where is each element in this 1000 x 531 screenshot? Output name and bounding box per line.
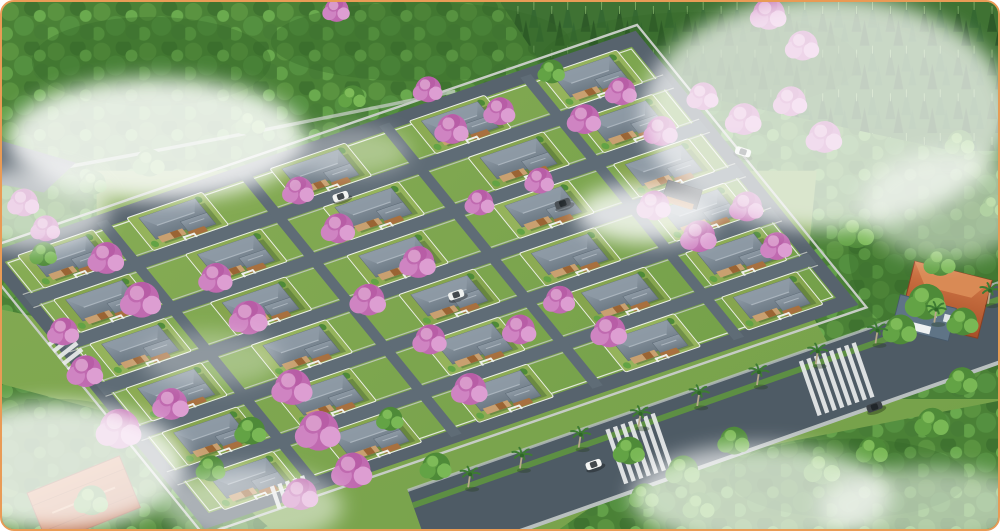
palm-shadow (754, 385, 768, 390)
canopy-highlight (421, 328, 433, 340)
canopy-highlight (420, 79, 430, 89)
canopy-highlight (329, 217, 341, 229)
canopy-highlight (238, 304, 252, 317)
aerial-render-image (2, 2, 998, 529)
canopy-highlight (923, 411, 935, 423)
palm-crown (988, 289, 992, 293)
palm-crown (816, 349, 820, 353)
canopy-highlight (599, 319, 612, 332)
canopy-highlight (206, 266, 218, 278)
canopy-highlight (891, 318, 903, 330)
canopy-highlight (442, 117, 454, 129)
palm-shadow (635, 426, 649, 431)
canopy-highlight (544, 62, 554, 72)
canopy-highlight (472, 192, 482, 202)
canopy-highlight (954, 311, 965, 322)
canopy-highlight (575, 107, 587, 119)
canopy-highlight (725, 430, 736, 441)
canopy-highlight (768, 235, 779, 246)
canopy-highlight (306, 415, 322, 431)
canopy-highlight (96, 246, 109, 259)
canopy-highlight (491, 100, 502, 111)
canopy-highlight (203, 458, 213, 468)
aerial-render-figure (0, 0, 1000, 531)
pink-blossom-tree (322, 2, 349, 22)
palm-crown (757, 370, 761, 374)
canopy-highlight (460, 377, 473, 390)
canopy-highlight (358, 287, 371, 300)
palm-shadow (813, 364, 827, 369)
palm-shadow (873, 343, 887, 348)
palm-shadow (517, 468, 531, 473)
palm-shadow (931, 322, 945, 327)
canopy-highlight (427, 456, 438, 467)
canopy-highlight (341, 457, 355, 471)
canopy-highlight (130, 286, 144, 300)
canopy-highlight (408, 250, 421, 263)
canopy-highlight (915, 288, 929, 302)
canopy-highlight (620, 440, 631, 451)
palm-crown (579, 433, 583, 437)
canopy-highlight (161, 392, 174, 405)
canopy-highlight (510, 318, 522, 330)
screenshot-stage (0, 0, 1000, 531)
palm-crown (468, 472, 472, 476)
canopy-highlight (75, 359, 88, 372)
canopy-highlight (290, 180, 301, 191)
canopy-highlight (863, 440, 874, 451)
canopy-highlight (55, 321, 66, 332)
palm-crown (520, 454, 524, 458)
canopy-highlight (383, 410, 393, 420)
canopy-highlight (531, 171, 541, 181)
mist-cloud (291, 126, 411, 176)
palm-shadow (576, 447, 590, 452)
canopy-highlight (953, 370, 964, 381)
palm-crown (875, 329, 879, 333)
palm-crown (934, 308, 938, 312)
canopy-highlight (242, 420, 253, 431)
canopy-highlight (612, 80, 623, 91)
palm-shadow (694, 405, 708, 410)
canopy-highlight (345, 88, 355, 98)
canopy-highlight (551, 289, 562, 300)
mist-cloud (141, 331, 280, 387)
palm-crown (638, 412, 642, 416)
palm-shadow (465, 487, 479, 492)
palm-crown (697, 391, 701, 395)
canopy-highlight (281, 373, 295, 387)
